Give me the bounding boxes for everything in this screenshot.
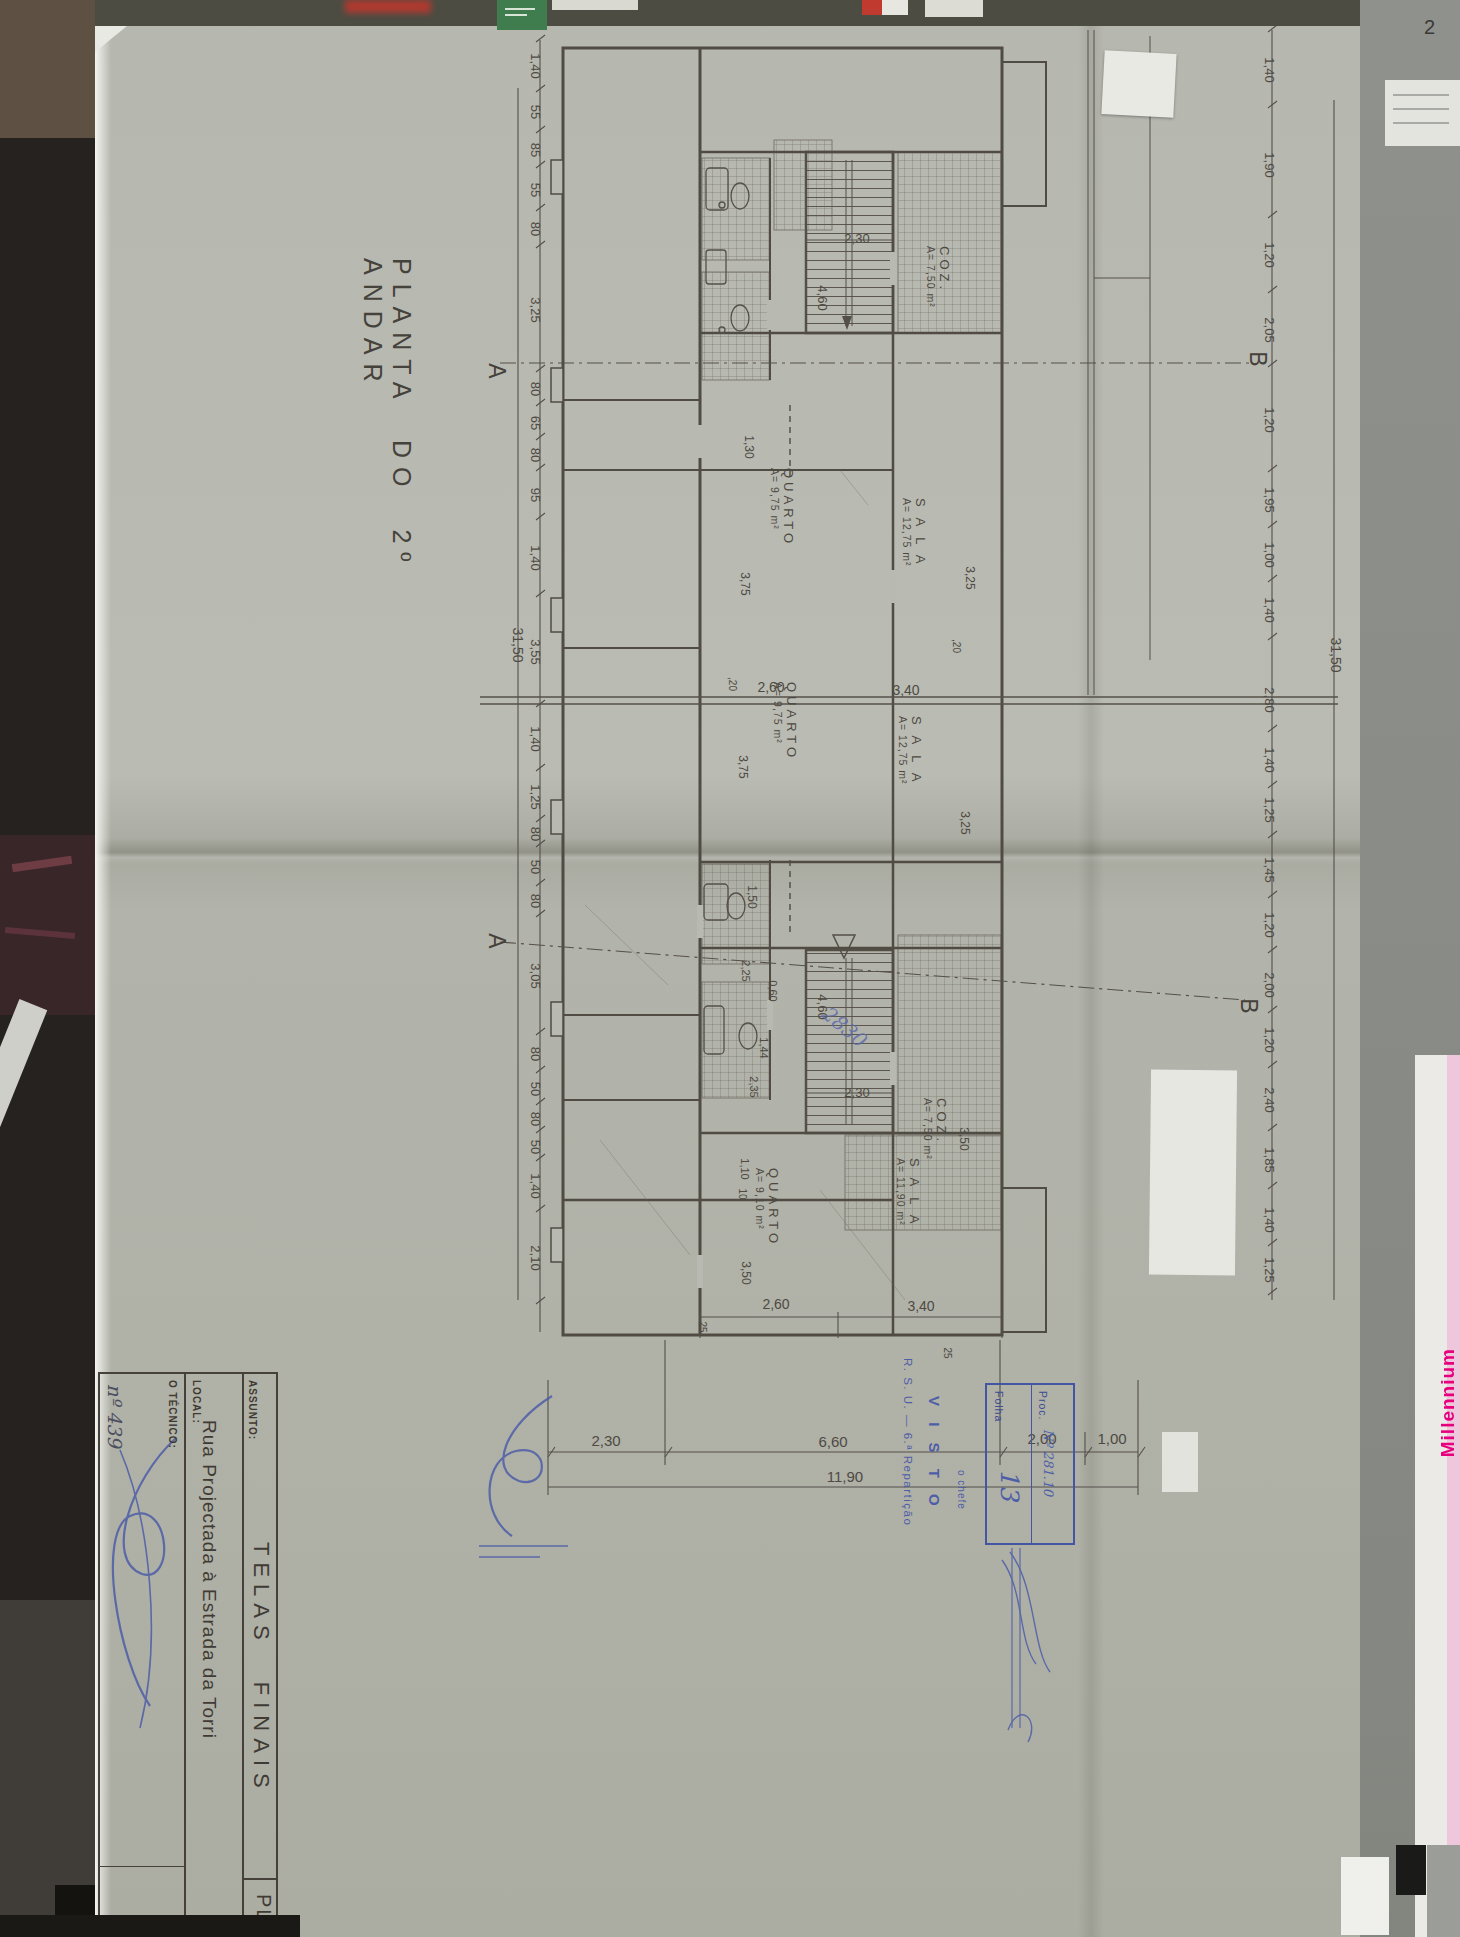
svg-text:2,05: 2,05 <box>1262 317 1277 342</box>
assunto-value: TELAS FINAIS <box>248 1542 274 1795</box>
svg-text:1,20: 1,20 <box>1262 407 1277 432</box>
millennium-card-edge <box>1447 1055 1460 1937</box>
room-name: QUARTO <box>781 468 796 633</box>
svg-text:6,60: 6,60 <box>818 1433 847 1450</box>
svg-text:80: 80 <box>528 222 543 236</box>
svg-text:3,25: 3,25 <box>958 811 972 835</box>
background-red-object <box>345 0 431 13</box>
room-label-sala-1: S A L A A= 12,75 m² <box>882 498 928 673</box>
svg-text:A: A <box>484 363 510 379</box>
folha-label: Folha <box>993 1391 1005 1422</box>
svg-text:80: 80 <box>528 894 543 908</box>
left-dimension-chain: 1,40 55 85 55 80 3,25 80 65 80 95 1,40 3… <box>510 53 543 1270</box>
background-white-box <box>1385 80 1460 146</box>
local-label: LOCAL: <box>191 1380 202 1424</box>
room-area: A= 11,90 m² <box>895 1158 907 1333</box>
tecnico-number-handwritten: nº 439 <box>104 1384 126 1447</box>
svg-text:80: 80 <box>528 1047 543 1061</box>
room-area: A= 9,75 m² <box>772 682 784 847</box>
room-area: A= 12,75 m² <box>901 498 913 673</box>
background-paper-edge <box>552 0 638 10</box>
svg-text:2,40: 2,40 <box>1262 1087 1277 1112</box>
svg-text:1,40: 1,40 <box>1262 747 1277 772</box>
svg-text:2,30: 2,30 <box>844 231 869 246</box>
assunto-label: ASSUNTO: <box>247 1380 258 1440</box>
svg-text:25: 25 <box>697 1321 708 1333</box>
svg-text:1,25: 1,25 <box>1262 1257 1277 1282</box>
room-label-sala-2: S A L A A= 12,75 m² <box>878 716 924 891</box>
svg-text:2,25: 2,25 <box>740 960 752 981</box>
svg-text:65: 65 <box>528 416 543 430</box>
room-name: QUARTO <box>766 1168 781 1333</box>
proc-label: Proc. <box>1037 1391 1049 1421</box>
svg-text:1,50: 1,50 <box>745 885 759 909</box>
photo-edge-bottom <box>0 1915 300 1937</box>
background-logo-card <box>862 0 908 15</box>
background-card <box>925 0 983 17</box>
svg-text:3,40: 3,40 <box>892 682 919 698</box>
svg-text:1,30: 1,30 <box>742 435 756 459</box>
svg-text:80: 80 <box>528 1112 543 1126</box>
right-dimension-chain: 1,40 1,90 1,20 2,05 1,20 1,95 1,00 1,40 … <box>1262 57 1344 1282</box>
svg-text:95: 95 <box>528 488 543 502</box>
background-object <box>0 0 95 138</box>
svg-text:1,40: 1,40 <box>1262 57 1277 82</box>
millennium-brand-text: Millennium <box>1437 1348 1459 1457</box>
svg-text:1,00: 1,00 <box>1097 1430 1126 1447</box>
photo-edge-left <box>0 0 95 1937</box>
svg-text:1,20: 1,20 <box>1262 242 1277 267</box>
room-name: COZ. <box>934 1098 949 1223</box>
svg-text:11,90: 11,90 <box>827 1468 863 1485</box>
svg-text:1,85: 1,85 <box>1262 1147 1277 1172</box>
svg-text:1,40: 1,40 <box>1262 1207 1277 1232</box>
svg-text:3,75: 3,75 <box>736 755 750 779</box>
svg-text:1,40: 1,40 <box>528 545 543 570</box>
room-label-sala-3: S A L A A= 11,90 m² <box>876 1158 922 1333</box>
room-label-quarto-1: QUARTO A= 9,75 m² <box>750 468 796 633</box>
room-area: A= 12,75 m² <box>897 716 909 891</box>
room-area: A= 9,10 m² <box>754 1168 766 1333</box>
svg-text:31,50: 31,50 <box>510 627 526 662</box>
svg-text:2,30: 2,30 <box>844 1085 869 1100</box>
svg-text:B: B <box>1245 351 1271 366</box>
room-label-quarto-2: QUARTO A= 9,75 m² <box>753 682 799 847</box>
svg-text:3,05: 3,05 <box>528 963 543 988</box>
room-name: S A L A <box>907 1158 922 1333</box>
room-name: S A L A <box>913 498 928 673</box>
room-name: QUARTO <box>784 682 799 847</box>
svg-text:55: 55 <box>528 183 543 197</box>
svg-text:85: 85 <box>528 143 543 157</box>
paper-sliver <box>0 999 47 1131</box>
svg-text:1,40: 1,40 <box>528 1173 543 1198</box>
svg-text:1,95: 1,95 <box>1262 487 1277 512</box>
svg-text:2,10: 2,10 <box>528 1245 543 1270</box>
svg-text:0,60: 0,60 <box>767 980 779 1001</box>
svg-text:1,20: 1,20 <box>1262 912 1277 937</box>
folha-value-handwritten: 13 <box>995 1469 1024 1501</box>
svg-text:80: 80 <box>528 827 543 841</box>
svg-text:B: B <box>1236 998 1262 1013</box>
background-white-card <box>1101 50 1176 118</box>
svg-text:3,25: 3,25 <box>528 297 543 322</box>
svg-text:,20: ,20 <box>727 677 738 691</box>
drawing-title: PLANTA DO 2º ANDAR <box>372 258 416 678</box>
svg-text:1,25: 1,25 <box>528 784 543 809</box>
title-block-tecnico-column: O TÉCNICO: nº 439 <box>100 1374 184 1935</box>
svg-text:A: A <box>484 933 510 949</box>
svg-text:50: 50 <box>528 860 543 874</box>
window-notches <box>551 160 563 1262</box>
room-label-quarto-3: QUARTO A= 9,10 m² <box>735 1168 781 1333</box>
local-value: Rua Projectada à Estrada da Torri <box>198 1420 220 1739</box>
svg-text:1,25: 1,25 <box>1262 797 1277 822</box>
room-name: COZ. <box>937 246 952 371</box>
title-block-assunto-column: ASSUNTO: TELAS FINAIS PL <box>242 1374 278 1935</box>
room-name: S A L A <box>909 716 924 891</box>
room-area: A= 7,50 m² <box>922 1098 934 1223</box>
photo-edge-top <box>95 0 1360 26</box>
svg-text:3,50: 3,50 <box>957 1127 971 1151</box>
svg-text:50: 50 <box>528 1082 543 1096</box>
svg-text:1,20: 1,20 <box>1262 1027 1277 1052</box>
svg-text:1,44: 1,44 <box>758 1037 770 1058</box>
svg-text:2,35: 2,35 <box>748 1076 760 1097</box>
title-block-divider <box>100 1866 184 1867</box>
svg-text:4,60: 4,60 <box>815 285 830 310</box>
visto-stamp-word: V I S T O <box>926 1396 943 1576</box>
photo-of-floor-plan: 1,40 55 85 55 80 3,25 80 65 80 95 1,40 3… <box>0 0 1460 1937</box>
white-paper-scrap <box>1162 1432 1198 1492</box>
room-area: A= 7,50 m² <box>925 246 937 371</box>
svg-text:80: 80 <box>528 382 543 396</box>
background-paper-corner <box>1341 1857 1389 1935</box>
section-markers: A A B B <box>484 351 1271 1013</box>
svg-text:3,25: 3,25 <box>963 566 977 590</box>
title-block-local-column: LOCAL: Rua Projectada à Estrada da Torri <box>184 1374 242 1935</box>
tecnico-label: O TÉCNICO: <box>167 1380 178 1449</box>
room-label-coz-1: COZ. A= 7,50 m² <box>906 246 952 371</box>
svg-text:1,90: 1,90 <box>1262 152 1277 177</box>
ref-box-divider <box>1031 1385 1032 1543</box>
paper-stack-edge <box>1415 1055 1447 1937</box>
svg-text:,20: ,20 <box>951 639 962 653</box>
approval-signature <box>490 1396 552 1536</box>
svg-text:1,00: 1,00 <box>1262 542 1277 567</box>
svg-text:50: 50 <box>528 1140 543 1154</box>
svg-text:1,45: 1,45 <box>1262 857 1277 882</box>
svg-text:3,55: 3,55 <box>528 639 543 664</box>
svg-text:2,80: 2,80 <box>1262 687 1277 712</box>
background-green-card <box>497 0 547 30</box>
background-dark-object <box>1396 1845 1426 1895</box>
room-area: A= 9,75 m² <box>769 468 781 633</box>
svg-text:1,40: 1,40 <box>1262 597 1277 622</box>
visto-stamp-chief: o chefe <box>956 1470 967 1540</box>
svg-text:2,00: 2,00 <box>1262 972 1277 997</box>
handwritten-corner-note: 2 <box>1424 16 1435 39</box>
svg-text:1,40: 1,40 <box>528 726 543 751</box>
svg-text:31,50: 31,50 <box>1328 637 1344 672</box>
visto-stamp-department: R. S. U. — 6.ª Repartição <box>902 1358 914 1588</box>
svg-text:55: 55 <box>528 105 543 119</box>
svg-text:80: 80 <box>528 448 543 462</box>
title-block: O TÉCNICO: nº 439 LOCAL: Rua Projectada … <box>98 1372 278 1937</box>
svg-text:2,30: 2,30 <box>591 1432 620 1449</box>
proc-value-handwritten: Nº 281.10 <box>1041 1429 1056 1496</box>
svg-text:25: 25 <box>942 1347 953 1359</box>
background-grey-object <box>1427 1845 1460 1937</box>
visto-signature <box>1002 1552 1050 1672</box>
svg-text:1,40: 1,40 <box>528 53 543 78</box>
folha-proc-box: Folha 13 Proc. Nº 281.10 <box>985 1383 1075 1545</box>
white-paper-scrap <box>1149 1070 1237 1276</box>
